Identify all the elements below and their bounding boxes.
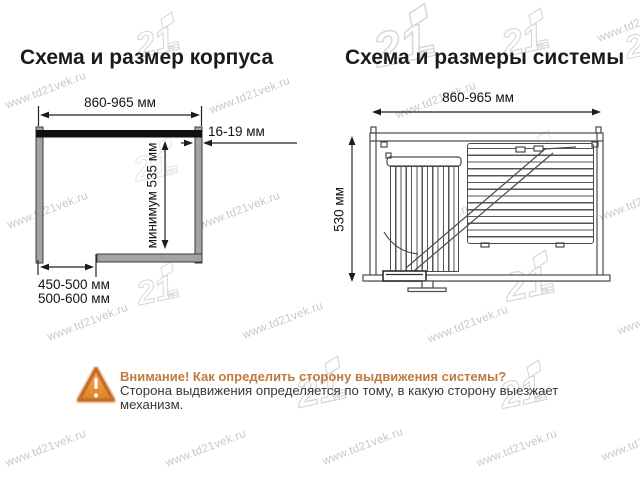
page: www.td21vek.ru www.td21vek.ru www.td21ve… bbox=[0, 0, 640, 480]
watermark-text: www.td21vek.ru bbox=[208, 75, 292, 117]
system-height-dimension bbox=[349, 136, 356, 282]
watermark-text: www.td21vek.ru bbox=[46, 302, 130, 344]
cabinet-right-wall bbox=[195, 127, 202, 263]
watermark-text: www.td21vek.ru bbox=[6, 190, 90, 232]
watermark-text: www.td21vek.ru bbox=[475, 428, 559, 470]
warning-title: Внимание! Как определить сторону выдвиже… bbox=[120, 369, 506, 384]
watermark-text: www.td21vek.ru bbox=[616, 296, 640, 338]
mesh-basket-vertical-slats bbox=[390, 166, 459, 272]
watermark-text: www.td21vek.ru bbox=[164, 428, 248, 470]
watermark-text: www.td21vek.ru bbox=[598, 182, 640, 224]
watermark-text: www.td21vek.ru bbox=[426, 304, 510, 346]
cabinet-depth-label-2: 500-600 мм bbox=[38, 291, 110, 306]
watermark-text: www.td21vek.ru bbox=[241, 300, 325, 342]
right-diagram-title: Схема и размеры системы bbox=[345, 46, 624, 70]
basket-top-rail bbox=[387, 157, 461, 166]
warning-body-line-1: Сторона выдвижения определяется по тому,… bbox=[120, 383, 558, 398]
cabinet-depth-label-1: 450-500 мм bbox=[38, 277, 110, 292]
watermark-text: www.td21vek.ru bbox=[198, 190, 282, 232]
frame-tab-right bbox=[596, 127, 601, 133]
frame-bottom-rail bbox=[363, 275, 610, 281]
system-height-label: 530 мм bbox=[332, 175, 347, 245]
system-width-label: 860-965 мм bbox=[398, 90, 558, 105]
watermark-logo: 21 bbox=[128, 257, 191, 326]
wall-thickness-dimension bbox=[181, 140, 297, 147]
mesh-shelf-horizontal-slats bbox=[467, 143, 594, 244]
watermark-logo: 21 bbox=[495, 245, 570, 327]
wall-thickness-label: 16-19 мм bbox=[208, 124, 265, 139]
warning-body-line-2: механизм. bbox=[120, 397, 183, 412]
left-diagram-title: Схема и размер корпуса bbox=[20, 46, 273, 70]
foot-pedestal bbox=[408, 281, 446, 292]
watermark-text: www.td21vek.ru bbox=[600, 422, 640, 464]
cabinet-depth-dimension bbox=[38, 254, 96, 277]
warning-triangle-icon bbox=[76, 366, 116, 411]
base-bracket bbox=[383, 271, 426, 281]
watermark-text: www.td21vek.ru bbox=[4, 428, 88, 470]
cabinet-width-label: 860-965 мм bbox=[40, 95, 200, 110]
watermark-text: www.td21vek.ru bbox=[321, 426, 405, 468]
cabinet-height-label: минимум 535 мм bbox=[145, 136, 160, 256]
cabinet-left-wall bbox=[36, 127, 43, 263]
frame-tab-left bbox=[371, 127, 376, 133]
